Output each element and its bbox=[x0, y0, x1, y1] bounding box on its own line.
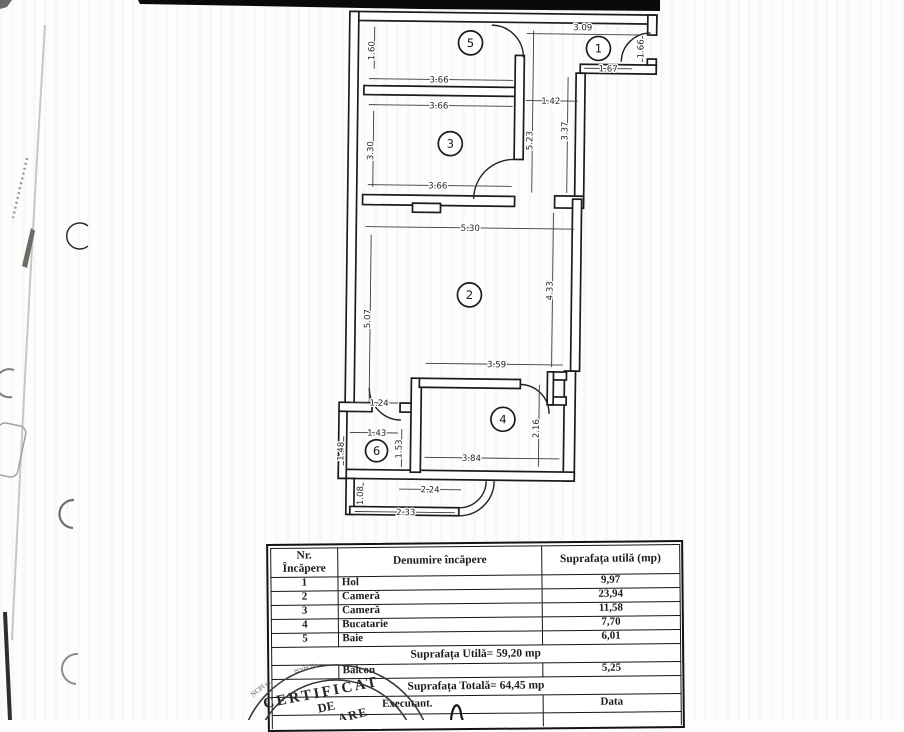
door-arc-kitchen bbox=[520, 385, 549, 414]
dim-label-bath-left: 1.60 bbox=[367, 41, 377, 60]
walls bbox=[338, 11, 657, 518]
dimension-lines bbox=[343, 26, 643, 515]
wall-room6-top-a bbox=[339, 402, 372, 411]
cell-value: 23,94 bbox=[542, 587, 680, 602]
cell-nr: 5 bbox=[271, 632, 339, 647]
wall-step-notch bbox=[412, 203, 440, 212]
room-numbers: 1 2 3 4 5 6 bbox=[365, 30, 610, 465]
dim-label-r3-left: 3.30 bbox=[366, 141, 376, 160]
dim-label-hall-door: 1.66 bbox=[636, 39, 646, 58]
wall-bottom bbox=[338, 469, 574, 481]
cell-value: 7,70 bbox=[542, 615, 680, 630]
dim-label-kitchen-h: 2.16 bbox=[532, 419, 542, 438]
dim-label-passage-w: 1.24 bbox=[369, 399, 388, 409]
balcony-wall-bottom bbox=[350, 506, 459, 515]
cell-nr: 3 bbox=[271, 604, 339, 619]
dim-label-hall-bottom: 1.67 bbox=[599, 64, 618, 74]
data-cell: Data bbox=[543, 693, 681, 712]
cell-nr: 4 bbox=[271, 618, 339, 633]
header-nr-line1: Nr. bbox=[296, 549, 311, 561]
cell-nr: 1 bbox=[270, 576, 338, 591]
room-number-5: 5 bbox=[467, 36, 474, 50]
dim-label-r6-w: 1.43 bbox=[367, 429, 386, 439]
dim-label-hall-top: 3.09 bbox=[573, 23, 592, 33]
c-curve-mark-4 bbox=[62, 654, 78, 684]
dim-label-r2-bottom: 3.59 bbox=[487, 360, 506, 370]
wall-right-upper-a bbox=[648, 15, 657, 35]
dim-label-r2-left: 5.07 bbox=[363, 309, 373, 328]
cell-value: 11,58 bbox=[542, 601, 680, 616]
room-circle-5 bbox=[458, 31, 482, 55]
wall-right-mid bbox=[575, 73, 586, 199]
balcony-curve-outer bbox=[459, 481, 494, 516]
room-circle-3 bbox=[438, 131, 462, 155]
room-number-4: 4 bbox=[499, 412, 506, 426]
c-curve-mark-3 bbox=[59, 500, 74, 528]
paper-edge-dots bbox=[13, 158, 27, 218]
dim-label-corridor-h: 5.23 bbox=[525, 131, 535, 150]
dim-label-r6-left: 1.48 bbox=[336, 442, 346, 461]
wall-room5-room3 bbox=[364, 86, 516, 97]
dim-label-kitchen-w: 3.84 bbox=[462, 454, 481, 464]
wall-kitchen-top bbox=[419, 378, 520, 388]
door-arc-room3 bbox=[474, 159, 514, 199]
scan-corner-mark bbox=[0, 0, 12, 9]
wall-niche-top bbox=[549, 372, 566, 380]
dim-label-r6-right: 1.53 bbox=[394, 439, 404, 458]
door-arc-hall bbox=[621, 33, 650, 62]
c-curve-mark-2 bbox=[0, 369, 14, 397]
room-circle-1 bbox=[586, 36, 610, 60]
cell-value: 9,97 bbox=[542, 573, 680, 588]
cell-value: 6,01 bbox=[542, 629, 680, 644]
wall-kitchen-left bbox=[410, 378, 421, 472]
doors bbox=[369, 24, 651, 423]
dim-label-balc-bottom: 2.33 bbox=[396, 508, 415, 518]
dim-label-balc-left: 1.08 bbox=[356, 486, 366, 505]
cell-nr-empty bbox=[271, 664, 339, 679]
balcony-wall-left bbox=[346, 478, 354, 514]
wall-below-hall bbox=[580, 64, 656, 74]
dim-label-r3-top: 3.66 bbox=[429, 101, 448, 111]
room-circle-6 bbox=[365, 440, 387, 462]
wall-right-upper-b bbox=[647, 59, 656, 74]
wall-room6-top-b bbox=[400, 403, 417, 412]
table-header-nr: Nr. Încăpere bbox=[270, 547, 338, 577]
wall-room6-left bbox=[338, 411, 347, 478]
dim-label-r3-bottom: 3.66 bbox=[428, 181, 447, 191]
room-number-3: 3 bbox=[447, 137, 454, 151]
room-number-2: 2 bbox=[466, 288, 473, 302]
wall-left bbox=[345, 11, 359, 408]
table-header-area: Suprafața utilă (mp) bbox=[541, 544, 679, 574]
cut-cell bbox=[543, 711, 681, 726]
room-circle-4 bbox=[491, 407, 515, 431]
dim-label-corridor-w: 1.42 bbox=[541, 97, 560, 107]
wall-pilaster bbox=[555, 196, 584, 208]
balcony-curve-inner bbox=[459, 481, 486, 508]
dim-label-r2-top: 5.30 bbox=[461, 224, 480, 234]
paper-edge-dark bbox=[5, 612, 10, 720]
table-header-name: Denumire încăpere bbox=[338, 545, 542, 576]
paper-edge-line bbox=[12, 25, 45, 640]
dim-label-r2-right: 4.33 bbox=[545, 281, 555, 300]
area-table: Nr. Încăpere Denumire încăpere Suprafața… bbox=[266, 540, 685, 732]
wall-room3-room2 bbox=[363, 195, 515, 207]
dim-label-bath-width: 3.66 bbox=[429, 75, 448, 85]
cut-cell bbox=[272, 712, 543, 728]
wall-top bbox=[354, 11, 657, 24]
wall-niche-bottom bbox=[549, 397, 566, 405]
dim-label-balc-w: 2.24 bbox=[420, 485, 439, 495]
wall-right-kitchen bbox=[563, 371, 575, 481]
cell-balcony-value: 5,25 bbox=[543, 661, 681, 676]
header-nr-line2: Încăpere bbox=[283, 562, 326, 574]
dark-wedge-mark bbox=[22, 228, 35, 268]
door-arc-room5 bbox=[491, 25, 523, 57]
dim-label-corridor-right: 3.37 bbox=[560, 121, 570, 140]
dimension-labels: 3.09 1.66 1.67 1.60 3.66 3.66 1.42 5.23 … bbox=[336, 20, 647, 521]
room-circle-2 bbox=[457, 283, 481, 307]
wall-rooms-corridor bbox=[514, 55, 524, 159]
apartment-plan: 3.09 1.66 1.67 1.60 3.66 3.66 1.42 5.23 … bbox=[336, 11, 657, 521]
wall-door-frame bbox=[547, 372, 553, 405]
door-arc-room6 bbox=[369, 388, 401, 420]
room-number-1: 1 bbox=[595, 41, 602, 55]
room-number-6: 6 bbox=[373, 444, 380, 458]
faint-stamp-edge bbox=[0, 422, 27, 479]
scan-artifacts-left bbox=[0, 25, 88, 720]
scan-top-bar bbox=[138, 0, 660, 11]
wall-right-room2 bbox=[571, 199, 582, 371]
c-curve-mark-1 bbox=[67, 223, 88, 249]
cell-nr: 2 bbox=[271, 590, 339, 605]
